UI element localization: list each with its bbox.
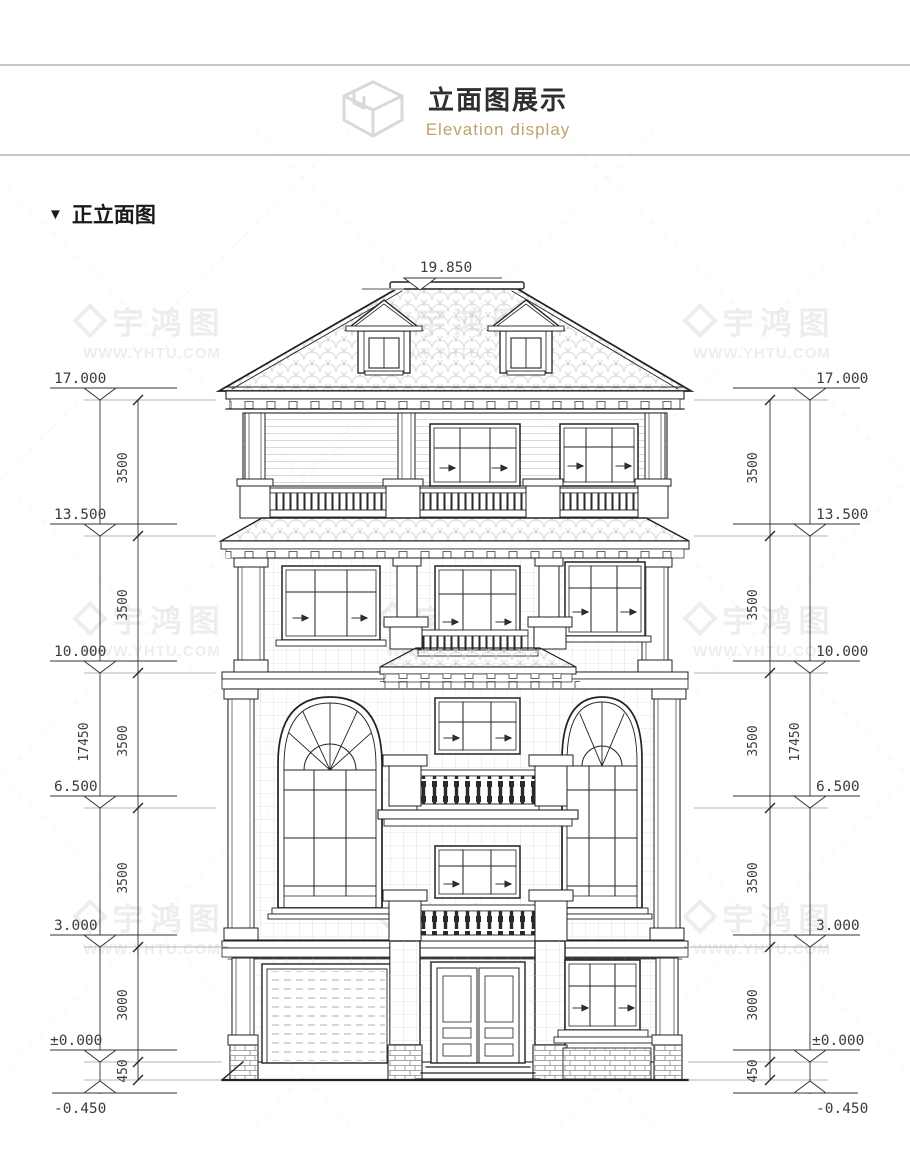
arched-window-left: [268, 697, 394, 919]
elev-left-minus450: -0.450: [54, 1101, 106, 1117]
seg-left-1: 3500: [116, 452, 131, 483]
canopy-13500: [221, 518, 689, 558]
seg-left-5: 3000: [116, 989, 131, 1020]
overall-right: 17450: [788, 722, 803, 761]
floor4-window-center: [430, 424, 520, 486]
ridge-elevation-label: 19.850: [420, 260, 472, 276]
entrance-steps: [416, 1067, 540, 1079]
elev-right-13500: 13.500: [816, 507, 868, 523]
elev-right-3000: 3.000: [816, 918, 860, 934]
seg-right-6: 450: [746, 1059, 761, 1082]
seg-right-2: 3500: [746, 589, 761, 620]
elev-right-6500: 6.500: [816, 779, 860, 795]
elev-left-6500: 6.500: [54, 779, 98, 795]
floor4: [243, 413, 667, 486]
entrance-door: [431, 962, 525, 1063]
elev-left-17000: 17.000: [54, 371, 106, 387]
elev-right-10000: 10.000: [816, 644, 868, 660]
seg-left-6: 450: [116, 1059, 131, 1082]
canopy-center: [380, 648, 576, 682]
seg-right-5: 3000: [746, 989, 761, 1020]
seg-right-3: 3500: [746, 725, 761, 756]
elev-right-0000: ±0.000: [812, 1033, 864, 1049]
seg-left-2: 3500: [116, 589, 131, 620]
porch-pier-left: [388, 941, 422, 1080]
floor1-window-center: [435, 846, 520, 898]
floor3-window-left: [276, 566, 386, 646]
seg-right-4: 3500: [746, 862, 761, 893]
elev-right-17000: 17.000: [816, 371, 868, 387]
roof: [219, 282, 691, 391]
seg-left-4: 3500: [116, 862, 131, 893]
elev-left-13500: 13.500: [54, 507, 106, 523]
elev-right-minus450: -0.450: [816, 1101, 868, 1117]
garage-door: [262, 964, 392, 1063]
drawing-canvas: 宇鸿图WWW.YHTU.COM 宇鸿图WWW.YHTU.COM 宇鸿图WWW.Y…: [0, 0, 910, 1161]
arched-window-right: [552, 697, 652, 919]
seg-right-1: 3500: [746, 452, 761, 483]
band-3000: [222, 941, 688, 959]
eave-cornice: [226, 391, 684, 413]
front-elevation-drawing: 19.850 17.000 13.500 10.000 6.500 3.000 …: [0, 0, 910, 1161]
overall-left: 17450: [77, 722, 92, 761]
seg-left-3: 3500: [116, 725, 131, 756]
floor1-window-right: [554, 960, 652, 1079]
floor3-window-right: [559, 562, 651, 642]
elev-left-10000: 10.000: [54, 644, 106, 660]
elev-left-3000: 3.000: [54, 918, 98, 934]
elev-left-0000: ±0.000: [50, 1033, 102, 1049]
floor1: [228, 941, 682, 1080]
floor2-window-center: [435, 698, 520, 754]
porch-pier-right: [533, 941, 567, 1080]
floor4-window-right: [560, 424, 638, 486]
